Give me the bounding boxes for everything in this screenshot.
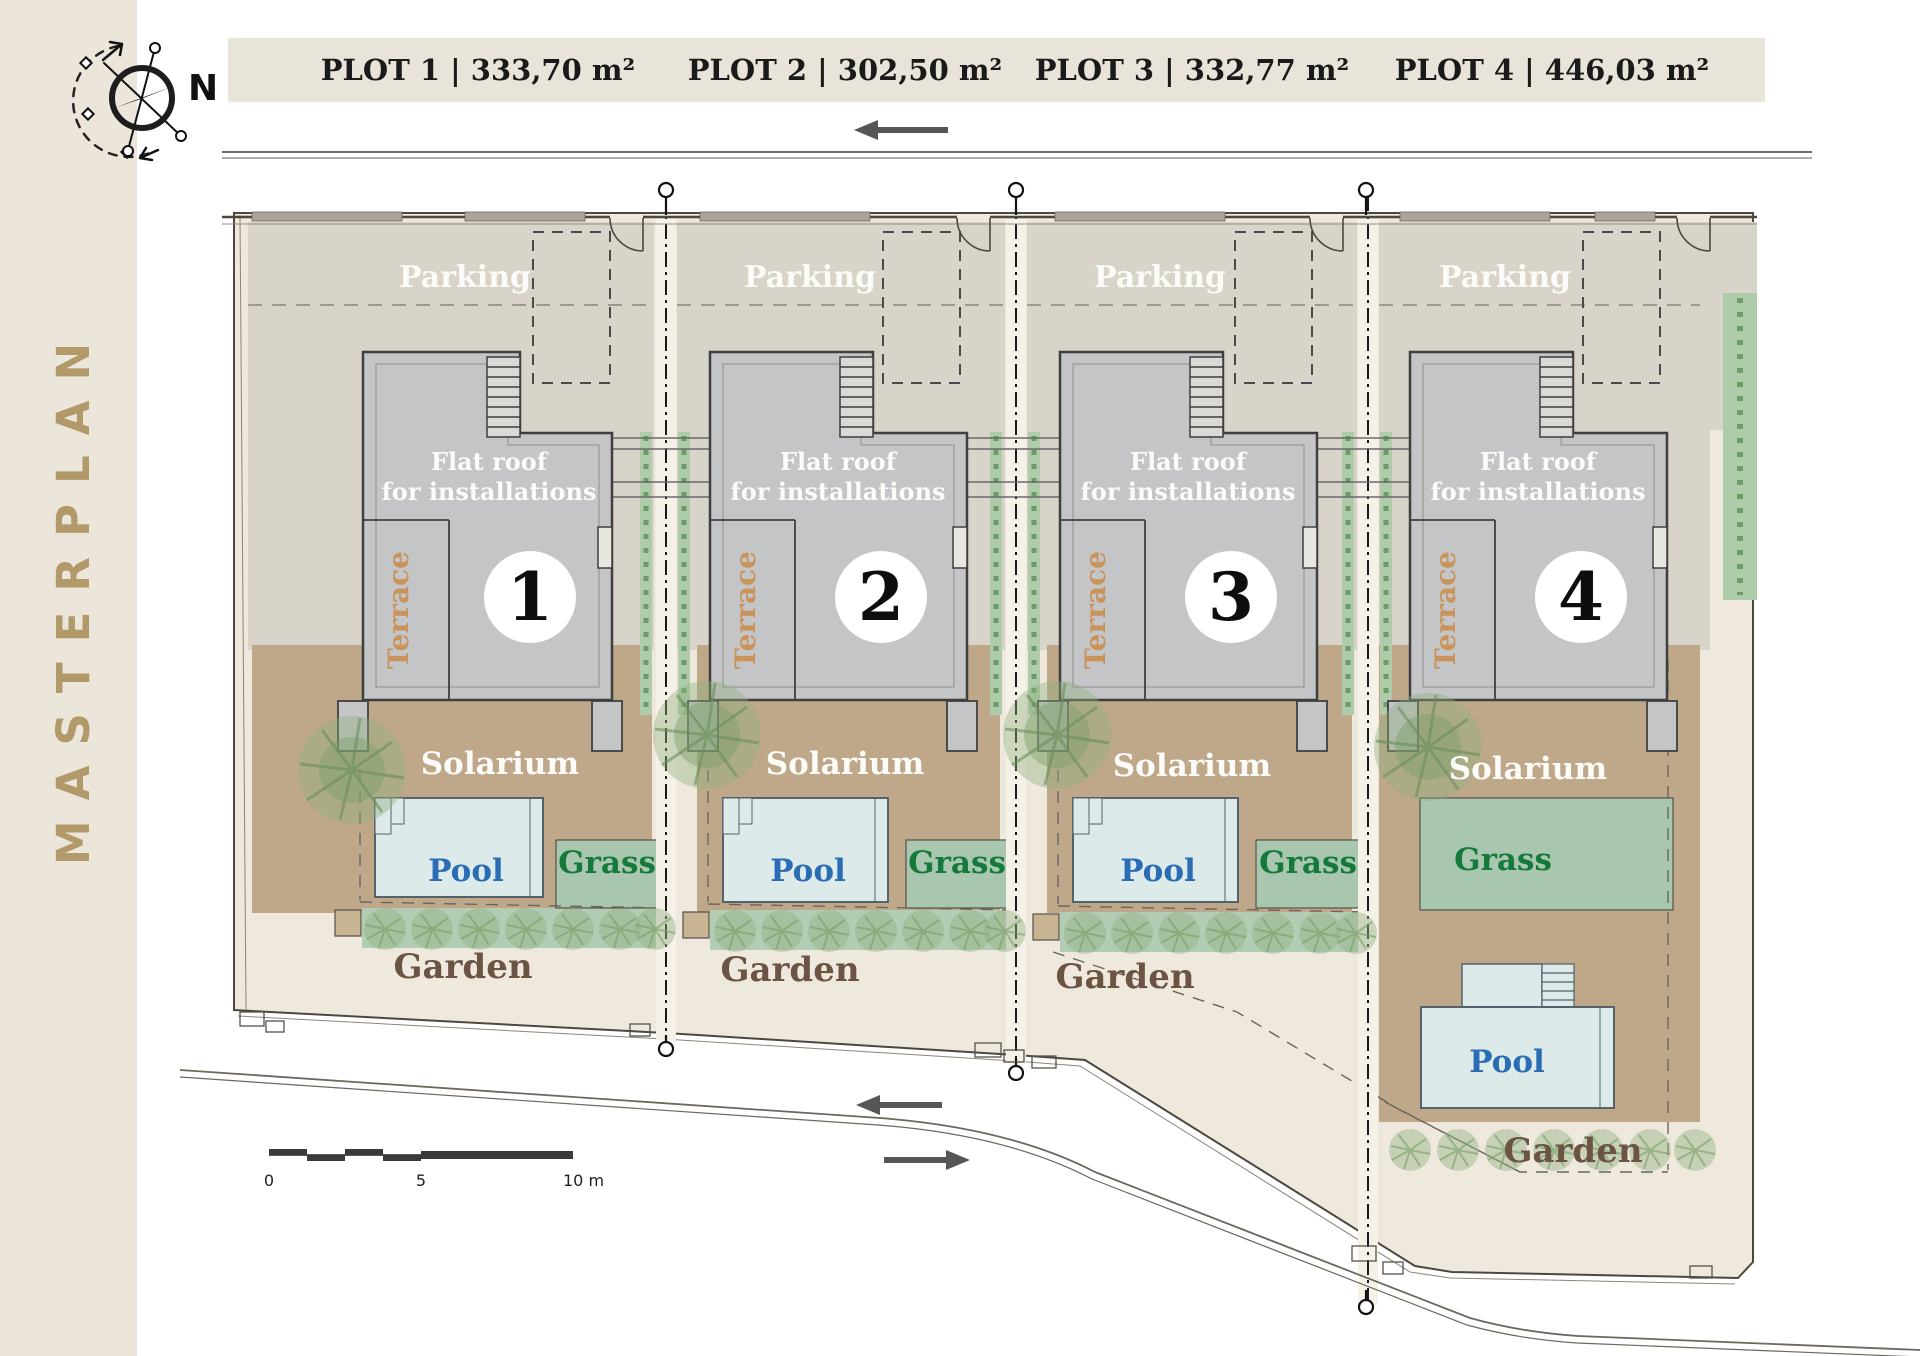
compass-north-label: N: [188, 68, 218, 109]
plot4-flat-roof-label-1: Flat roof: [1480, 447, 1598, 476]
window: [598, 527, 612, 568]
plot3-header-label: PLOT 3 | 332,77 m²: [1035, 53, 1350, 87]
plot3-parking-label: Parking: [1094, 260, 1226, 295]
plot2-header-label: PLOT 2 | 302,50 m²: [688, 53, 1003, 87]
palm-tree-icon: [1003, 681, 1111, 789]
street-direction-arrow-west-icon: [854, 120, 948, 140]
plot4-parking-label: Parking: [1439, 260, 1571, 295]
plot1-garden-label: Garden: [393, 947, 532, 987]
road-arrow-east-icon: [884, 1150, 970, 1170]
plot3-flat-roof-label-1: Flat roof: [1130, 447, 1248, 476]
masterplan-page: MASTERPLAN N PLOT 1 | 333,70 m² PLOT 2 |…: [0, 0, 1920, 1356]
pillar: [947, 701, 977, 751]
plot2-grass-label: Grass: [908, 845, 1006, 881]
plot1-solarium-label: Solarium: [421, 746, 580, 782]
hedge-icon: [1723, 293, 1757, 600]
plot2-garden-label: Garden: [720, 950, 859, 990]
road-direction-arrows: [856, 1095, 970, 1170]
plot1-flat-roof-label-1: Flat roof: [431, 447, 549, 476]
plot3-flat-roof-label-2: for installations: [1080, 477, 1295, 506]
pillar: [1647, 701, 1677, 751]
window: [1653, 527, 1667, 568]
plot1-number: 1: [507, 558, 553, 636]
plot4-pool-label: Pool: [1469, 1044, 1545, 1080]
page-title: MASTERPLAN: [47, 323, 100, 865]
road-arrow-west-icon: [856, 1095, 942, 1115]
plot3-pool-label: Pool: [1120, 853, 1196, 889]
plot3-grass-label: Grass: [1259, 845, 1357, 881]
pillar: [1297, 701, 1327, 751]
palm-tree-icon: [653, 681, 761, 789]
plot4-solarium-label: Solarium: [1449, 751, 1608, 787]
palm-tree-icon: [298, 716, 406, 824]
plot3-number: 3: [1208, 558, 1254, 636]
hedge-icon: [990, 432, 1002, 715]
plot4-flat-roof-label-2: for installations: [1430, 477, 1645, 506]
hedge-icon: [1342, 432, 1354, 715]
plot4-number: 4: [1558, 558, 1604, 636]
plot1-pool-label: Pool: [428, 853, 504, 889]
hedge-icon: [640, 432, 652, 715]
plot4-grass-label: Grass: [1454, 842, 1552, 878]
plot1-flat-roof-label-2: for installations: [381, 477, 596, 506]
pillar: [592, 701, 622, 751]
top-road: [222, 152, 1812, 158]
plot2-parking-label: Parking: [744, 260, 876, 295]
plot4-garden-label: Garden: [1503, 1131, 1642, 1171]
window: [1303, 527, 1317, 568]
plot2-solarium-label: Solarium: [766, 746, 925, 782]
scale-zero-label: 0: [264, 1171, 274, 1190]
plot2-flat-roof-label-2: for installations: [730, 477, 945, 506]
scale-five-label: 5: [416, 1171, 426, 1190]
plot4-header-label: PLOT 4 | 446,03 m²: [1395, 53, 1710, 87]
plot2-pool-label: Pool: [770, 853, 846, 889]
hedge-icon: [678, 432, 690, 715]
plot1-header-label: PLOT 1 | 333,70 m²: [321, 53, 636, 87]
hedge-icon: [1028, 432, 1040, 715]
plot3-garden-label: Garden: [1055, 957, 1194, 997]
plot2-terrace-label: Terrace: [729, 551, 762, 669]
masterplan-drawing: MASTERPLAN N PLOT 1 | 333,70 m² PLOT 2 |…: [0, 0, 1920, 1356]
plot2-number: 2: [858, 558, 904, 636]
plot3-solarium-label: Solarium: [1113, 748, 1272, 784]
plot1-grass-label: Grass: [558, 845, 656, 881]
scale-bar: 0 5 10 m: [264, 1149, 604, 1190]
plot1-parking-label: Parking: [399, 260, 531, 295]
plot1-terrace-label: Terrace: [382, 551, 415, 669]
plot4-terrace-label: Terrace: [1429, 551, 1462, 669]
scale-ten-label: 10 m: [563, 1171, 604, 1190]
hedge-icon: [1380, 432, 1392, 715]
window: [953, 527, 967, 568]
plot3-terrace-label: Terrace: [1079, 551, 1112, 669]
plot2-flat-roof-label-1: Flat roof: [780, 447, 898, 476]
